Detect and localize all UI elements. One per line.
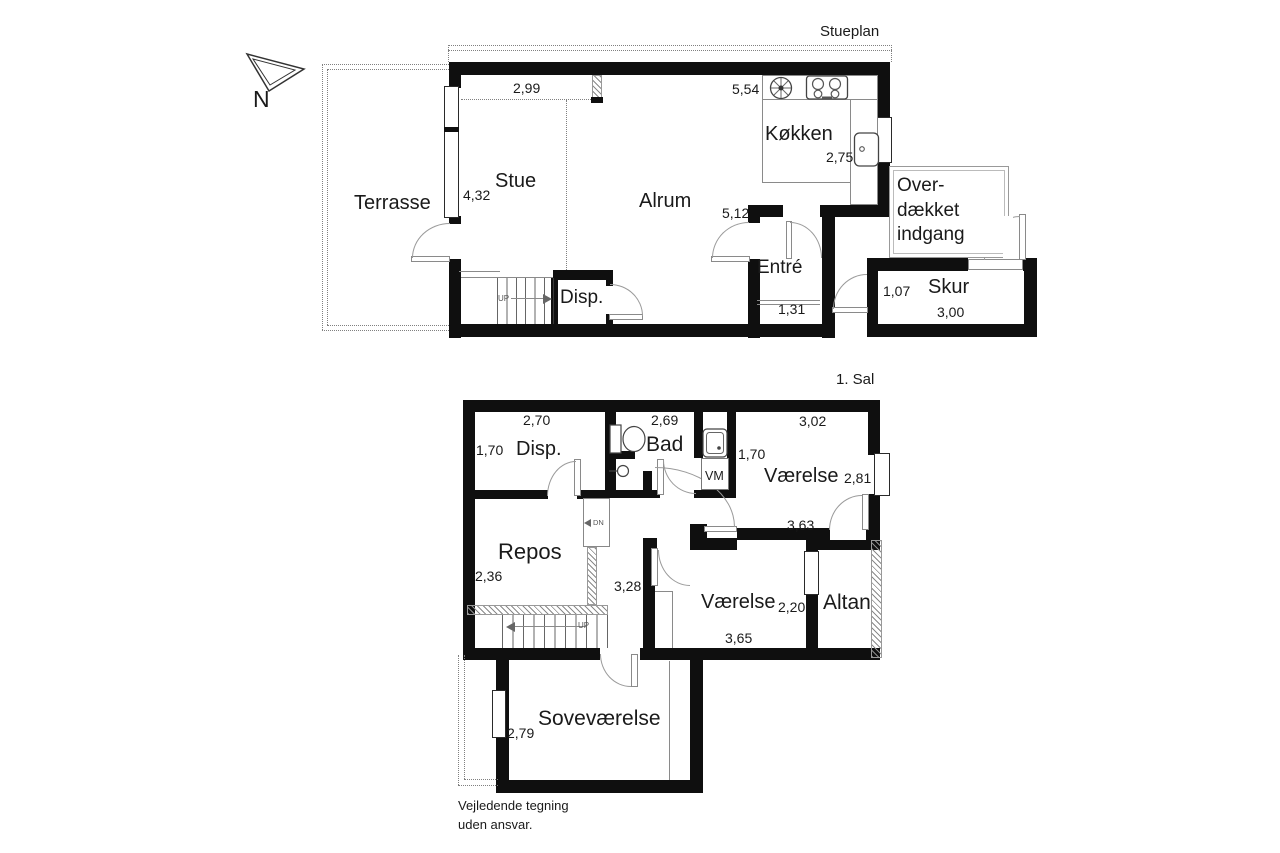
terrasse-outline — [322, 330, 449, 331]
door-leaf — [1019, 214, 1026, 260]
wall — [463, 400, 475, 660]
dim-label: 3,02 — [799, 413, 826, 430]
stair-treads — [502, 615, 608, 648]
round-sink-icon — [768, 75, 794, 101]
dim-label: 2,79 — [507, 725, 534, 742]
terrasse-outline — [327, 325, 449, 326]
stair-up-label: UP — [578, 621, 589, 631]
wall — [877, 62, 890, 118]
wall — [806, 594, 818, 648]
toilet-icon — [609, 421, 649, 457]
dim-label: 5,54 — [732, 81, 759, 98]
disclaimer-text: Vejledende tegning uden ansvar. — [458, 797, 569, 835]
roof-outline — [448, 45, 449, 62]
stair-dn-label: DN — [593, 518, 604, 527]
stair-railing-hatched — [587, 547, 597, 605]
room-label-kokken: Køkken — [765, 122, 833, 146]
terrasse-outline — [464, 655, 465, 779]
altan-railing-hatched — [871, 540, 882, 658]
stair-up-label: UP — [498, 294, 509, 304]
room-label-sovevaerelse: Soveværelse — [538, 706, 661, 731]
column-cap — [591, 97, 603, 103]
wall — [748, 205, 760, 223]
wall — [806, 536, 818, 551]
door-swing — [600, 654, 631, 687]
stair-arrow-icon — [506, 622, 515, 632]
stove-icon — [805, 74, 849, 101]
openplan-divider — [566, 100, 567, 278]
north-arrow-icon — [238, 45, 313, 95]
door-leaf — [651, 548, 658, 586]
room-label-vaerelse1: Værelse — [764, 464, 838, 488]
room-label-repos: Repos — [498, 539, 562, 565]
hand-basin-icon — [609, 462, 631, 480]
room-label-terrasse: Terrasse — [354, 191, 431, 215]
wall — [867, 258, 968, 271]
dim-label: 1,70 — [738, 446, 765, 463]
door-swing — [833, 274, 867, 309]
terrasse-outline — [464, 779, 498, 780]
wall — [867, 258, 878, 324]
room-label-disp: Disp. — [516, 437, 562, 461]
room-label-alrum: Alrum — [639, 189, 691, 213]
dim-label: 1,31 — [778, 301, 805, 318]
room-label-disp: Disp. — [560, 287, 603, 310]
wall — [1024, 258, 1037, 337]
room-label-altan: Altan — [823, 590, 871, 615]
room-label-bad: Bad — [646, 432, 683, 457]
wall — [449, 324, 833, 337]
first-floor-title: 1. Sal — [836, 371, 874, 389]
door-leaf — [631, 654, 638, 687]
dim-label: 1,70 — [476, 442, 503, 459]
wall — [496, 780, 703, 793]
door-swing — [547, 461, 576, 496]
room-label-stue: Stue — [495, 169, 536, 193]
terrasse-outline — [327, 69, 449, 70]
room-label-skur: Skur — [928, 275, 969, 299]
wall — [463, 490, 548, 499]
closet-line — [672, 591, 673, 648]
wall — [553, 270, 613, 280]
dimension-line — [461, 99, 593, 100]
dim-label: 4,32 — [463, 187, 490, 204]
room-label-overdaekket: Over- dækket indgang — [897, 174, 965, 248]
column-hatched — [592, 75, 602, 99]
dim-label: 3,00 — [937, 304, 964, 321]
washbasin-icon — [702, 428, 729, 459]
stair-arrow-icon — [543, 294, 552, 304]
dim-label: 2,69 — [651, 412, 678, 429]
door-swing — [412, 223, 450, 258]
wall — [820, 205, 835, 217]
terrasse-outline — [458, 785, 498, 786]
roof-outline — [448, 45, 892, 46]
covered-entry-opening — [1003, 216, 1013, 258]
wall — [867, 324, 1037, 337]
interior-line — [669, 661, 670, 780]
window — [444, 86, 459, 218]
door-swing — [712, 222, 749, 258]
floorplan-canvas: Stueplan 1. Sal N Vejledende tegning ude… — [0, 0, 1280, 853]
stair-railing-hatched — [467, 605, 608, 615]
closet-line — [655, 591, 673, 592]
room-label-vaerelse2: Værelse — [701, 590, 775, 614]
kitchen-zone-line — [762, 182, 850, 183]
wall — [690, 648, 703, 793]
terrasse-outline — [458, 655, 459, 785]
stair-edge — [459, 271, 500, 272]
kitchen-zone-line — [762, 100, 763, 182]
wall — [813, 540, 880, 550]
door-swing — [829, 495, 862, 530]
door-swing — [610, 284, 643, 316]
wall — [463, 648, 600, 660]
door-swing — [790, 222, 822, 258]
roof-outline — [448, 50, 892, 51]
terrasse-outline — [322, 64, 323, 330]
dim-label: 2,99 — [513, 80, 540, 97]
dim-label: 2,20 — [778, 599, 805, 616]
wall — [463, 400, 880, 412]
dim-label: 5,12 — [722, 205, 749, 222]
dim-label: 2,70 — [523, 412, 550, 429]
door-leaf — [862, 494, 869, 530]
terrasse-outline — [322, 64, 449, 65]
dim-label: 3,65 — [725, 630, 752, 647]
compass-label: N — [253, 86, 270, 114]
dim-label: 3,28 — [614, 578, 641, 595]
dim-label: 2,81 — [844, 470, 871, 487]
room-label-entre: Entré — [757, 257, 802, 280]
window — [804, 551, 819, 595]
door-swing — [658, 550, 690, 586]
skur-top-opening — [968, 259, 1023, 270]
kitchen-sink-icon — [853, 131, 881, 168]
wall — [605, 490, 660, 498]
stair-arrow-line — [511, 298, 545, 299]
wall — [449, 62, 461, 88]
dim-label: 2,36 — [475, 568, 502, 585]
stair-dn-arrow-icon — [584, 519, 591, 527]
terrasse-outline — [327, 69, 328, 325]
wall — [822, 217, 835, 338]
window-transom — [444, 127, 459, 132]
ground-floor-title: Stueplan — [820, 23, 879, 41]
window — [874, 453, 890, 496]
dim-label: 1,07 — [883, 283, 910, 300]
wall — [868, 400, 880, 455]
wall — [643, 471, 652, 491]
roof-outline — [891, 45, 892, 62]
wall — [640, 648, 880, 660]
stair-arrow-line — [514, 626, 586, 627]
washing-machine-label: VM — [705, 469, 724, 484]
window — [492, 690, 506, 738]
dim-label: 3,63 — [787, 517, 814, 534]
dim-label: 2,75 — [826, 149, 853, 166]
